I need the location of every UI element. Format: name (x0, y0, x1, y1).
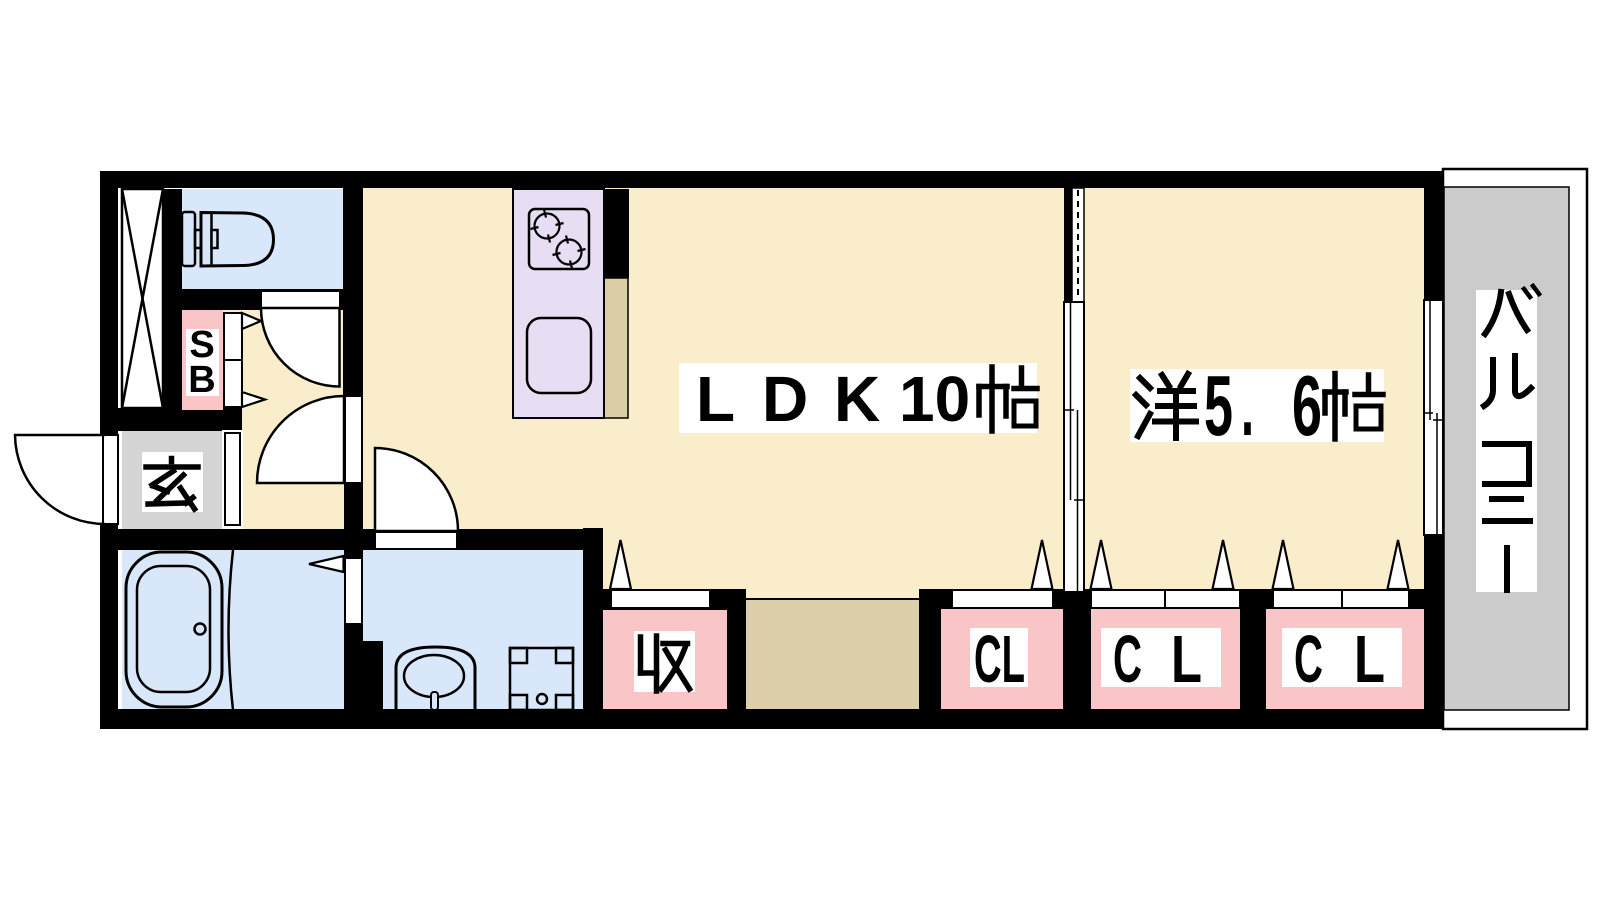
svg-text:L: L (696, 363, 735, 435)
svg-text:CL: CL (974, 622, 1025, 697)
svg-text:B: B (188, 359, 215, 401)
svg-text:6: 6 (1292, 359, 1322, 454)
svg-text:L: L (1171, 622, 1202, 697)
svg-text:K: K (834, 363, 880, 435)
svg-text:10: 10 (899, 363, 970, 435)
svg-text:D: D (762, 363, 808, 435)
svg-text:L: L (1354, 622, 1385, 697)
svg-text:C: C (1113, 622, 1142, 697)
svg-text:.: . (1241, 359, 1254, 454)
svg-text:C: C (1294, 622, 1323, 697)
svg-text:5: 5 (1204, 359, 1233, 454)
